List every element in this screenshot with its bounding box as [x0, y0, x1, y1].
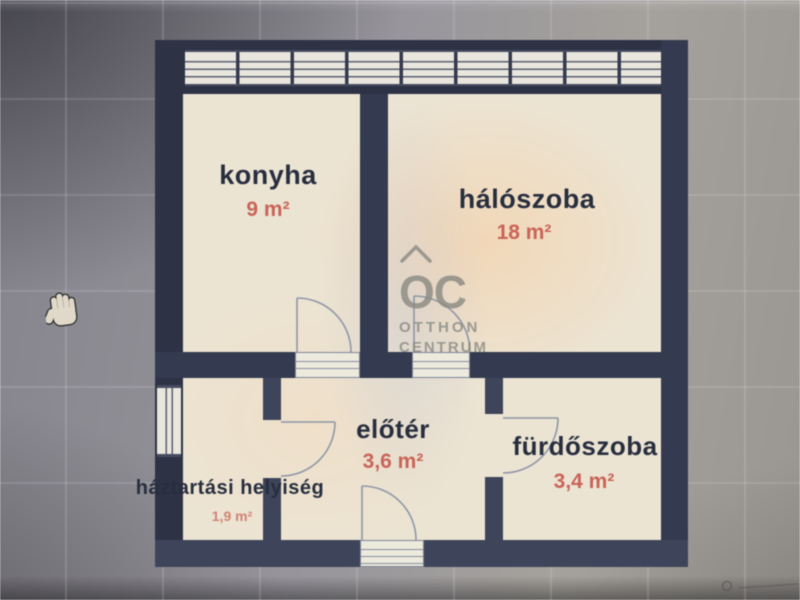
room-label-konyha: konyha	[219, 160, 317, 191]
door-sill-lines	[296, 355, 359, 375]
door-arc-utility	[281, 422, 335, 476]
open-hand-icon	[42, 288, 81, 332]
door-sill-kitchen	[295, 352, 360, 378]
window-band-top	[185, 50, 661, 86]
room-label-furdoszoba: fürdőszoba	[512, 431, 657, 462]
wall-bathroom-lower	[485, 477, 503, 542]
room-label-haloszoba: hálószoba	[459, 184, 596, 215]
door-sill-lines	[361, 543, 423, 564]
wall-mid-right	[470, 352, 688, 378]
room-area-konyha: 9 m²	[246, 198, 289, 222]
wall-mid-left	[155, 352, 295, 378]
photo-artifact	[715, 575, 800, 597]
wall-bottom-left-segment	[155, 540, 360, 567]
door-arc-kitchen	[297, 298, 351, 352]
pan-hand-cursor	[42, 288, 82, 337]
wall-bottom-right-segment	[424, 540, 688, 567]
window-left	[157, 385, 181, 457]
room-label-haztartasi: háztartási helyiség	[136, 477, 324, 500]
door-sill-lines	[413, 355, 469, 375]
room-area-haztartasi: 1,9 m²	[212, 508, 252, 524]
wall-bathroom-upper	[485, 378, 503, 414]
room-label-eloter: előtér	[356, 414, 430, 445]
floor-plan[interactable]: OC OTTHON CENTRUM konyha 9 m² hálószoba …	[155, 40, 688, 567]
wall-divider-kitchen-bedroom	[360, 94, 388, 352]
door-sill-entrance	[360, 540, 424, 567]
room-area-furdoszoba: 3,4 m²	[554, 470, 615, 494]
photo-background: OC OTTHON CENTRUM konyha 9 m² hálószoba …	[0, 0, 800, 600]
room-area-eloter: 3,6 m²	[363, 450, 424, 474]
wall-utility-upper	[263, 378, 281, 420]
room-area-haloszoba: 18 m²	[497, 221, 552, 245]
wall-right	[661, 40, 688, 567]
window-left-glazing-lines	[161, 388, 177, 454]
window-mullions	[185, 52, 661, 84]
door-arc-entrance	[362, 486, 416, 540]
